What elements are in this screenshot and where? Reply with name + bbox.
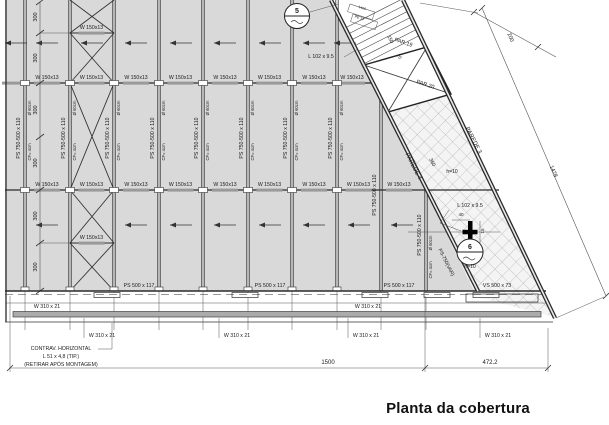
- drawing-label: W 310 x 21: [355, 304, 381, 310]
- drawing-label: W 150x13: [124, 75, 147, 81]
- drawing-label: W 150x13: [258, 75, 281, 81]
- drawing-label: W 310 x 21: [34, 304, 60, 310]
- drawing-label: 15: [480, 228, 485, 234]
- eave-label-leaders: [84, 318, 480, 338]
- roof-plan-drawing: W 150x13W 150x13W 150x13W 150x13W 150x13…: [0, 0, 609, 425]
- drawing-label: W 310 x 21: [353, 333, 379, 339]
- drawing-label: CF= 4cm: [294, 143, 299, 161]
- drawing-label: PS 750-500 x 110: [105, 117, 111, 158]
- drawing-label: PS 750-500 x 110: [61, 117, 67, 158]
- drawing-label: Ø 60cm: [116, 100, 121, 115]
- drawing-label: CF= 4cm: [205, 143, 210, 161]
- drawing-label: PS 500 x 117: [255, 283, 286, 289]
- drawing-label: PS 750-500 x 110: [417, 214, 423, 255]
- drawing-label: 300: [33, 262, 39, 271]
- drawing-label: W 150x13: [35, 75, 58, 81]
- drawing-label: (RETIRAR APÓS MONTAGEM): [24, 361, 98, 368]
- drawing-label: CF= 4cm: [72, 143, 77, 161]
- drawing-label: CONTRAV. HORIZONTAL: [31, 346, 92, 352]
- eave-assembly: [5, 291, 553, 322]
- drawing-title: Planta da cobertura: [350, 400, 566, 417]
- drawing-label: PS 750-500 x 110: [16, 117, 22, 158]
- drawing-label: CF= 4cm: [250, 143, 255, 161]
- drawing-label: Ø 60cm: [294, 100, 299, 115]
- drawing-label: W 150x13: [213, 75, 236, 81]
- drawing-label: CF= 4cm: [161, 143, 166, 161]
- drawing-label: CF= 4cm: [27, 143, 32, 161]
- drawing-label: L 51 x 4,8 (TIP.): [43, 354, 80, 360]
- drawing-label: PS 750-500 x 110: [283, 117, 289, 158]
- drawing-label: W 310 x 21: [224, 333, 250, 339]
- drawing-label: 150: [385, 34, 394, 44]
- drawing-label: W 150x13: [302, 75, 325, 81]
- drawing-label: CF= 4cm: [339, 143, 344, 161]
- drawing-label: Ø 60cm: [428, 235, 433, 250]
- drawing-label: W 150x13: [302, 182, 325, 188]
- drawing-label: Ø 60cm: [339, 100, 344, 115]
- roof-plan-page: W 150x13W 150x13W 150x13W 150x13W 150x13…: [0, 0, 609, 425]
- drawing-label: W 150x13: [80, 182, 103, 188]
- drawing-label: W 150x13: [213, 182, 236, 188]
- drawing-label: 40: [458, 212, 464, 217]
- drawing-label: 300: [33, 53, 39, 62]
- drawing-label: W 150x13: [387, 182, 410, 188]
- drawing-label: W 310 x 21: [89, 333, 115, 339]
- drawing-label: 300: [33, 105, 39, 114]
- drawing-label: 1478: [548, 165, 558, 179]
- drawing-label: h=10: [446, 169, 457, 175]
- drawing-label: Ø 60cm: [27, 100, 32, 115]
- drawing-label: L 102 x 9.5: [457, 203, 483, 209]
- drawing-label: PS 750-500 x 110: [239, 117, 245, 158]
- drawing-label: PS 500 x 117: [384, 283, 415, 289]
- drawing-label: W 150x13: [35, 182, 58, 188]
- drawing-label: W 150x13: [169, 75, 192, 81]
- drawing-label: 300: [33, 211, 39, 220]
- drawing-label: Ø 60cm: [205, 100, 210, 115]
- drawing-label: PS 750-500 x 110: [150, 117, 156, 158]
- drawing-label: 300: [33, 158, 39, 167]
- detail-circle-6: [457, 239, 483, 265]
- drawing-label: PS 750-500 x 110: [194, 117, 200, 158]
- drawing-label: 200: [505, 32, 514, 43]
- drawing-label: CF= 4cm: [428, 261, 433, 279]
- drawing-label: PS 500 x 117: [124, 283, 155, 289]
- drawing-label: CF= 4cm: [116, 143, 121, 161]
- drawing-label: W 150x13: [347, 182, 370, 188]
- drawing-label: W 150x13: [169, 182, 192, 188]
- drawing-label: 1500: [321, 360, 335, 366]
- drawing-label: Ø 60cm: [250, 100, 255, 115]
- drawing-label: Ø 60cm: [72, 100, 77, 115]
- drawing-label: W 150x13: [80, 25, 103, 31]
- drawing-label: PS 750-500 x 110: [328, 117, 334, 158]
- drawing-label: W 150x13: [80, 235, 103, 241]
- drawing-label: 300: [33, 12, 39, 21]
- drawing-label: W 150x13: [340, 75, 363, 81]
- drawing-label: PS 750-500 x 110: [372, 174, 378, 215]
- drawing-label: Ø 60cm: [161, 100, 166, 115]
- drawing-label: W 150x13: [80, 75, 103, 81]
- drawing-label: W 150x13: [258, 182, 281, 188]
- drawing-label: 472.2: [482, 360, 498, 366]
- drawing-label: h=10: [464, 264, 475, 270]
- drawing-label: 6: [468, 244, 472, 251]
- drawing-label: VS 500 x 73: [483, 283, 511, 289]
- drawing-label: W 150x13: [124, 182, 147, 188]
- drawing-label: 5: [295, 8, 299, 15]
- drawing-label: W 310 x 21: [485, 333, 511, 339]
- drawing-label: L 102 x 9.5: [308, 54, 334, 60]
